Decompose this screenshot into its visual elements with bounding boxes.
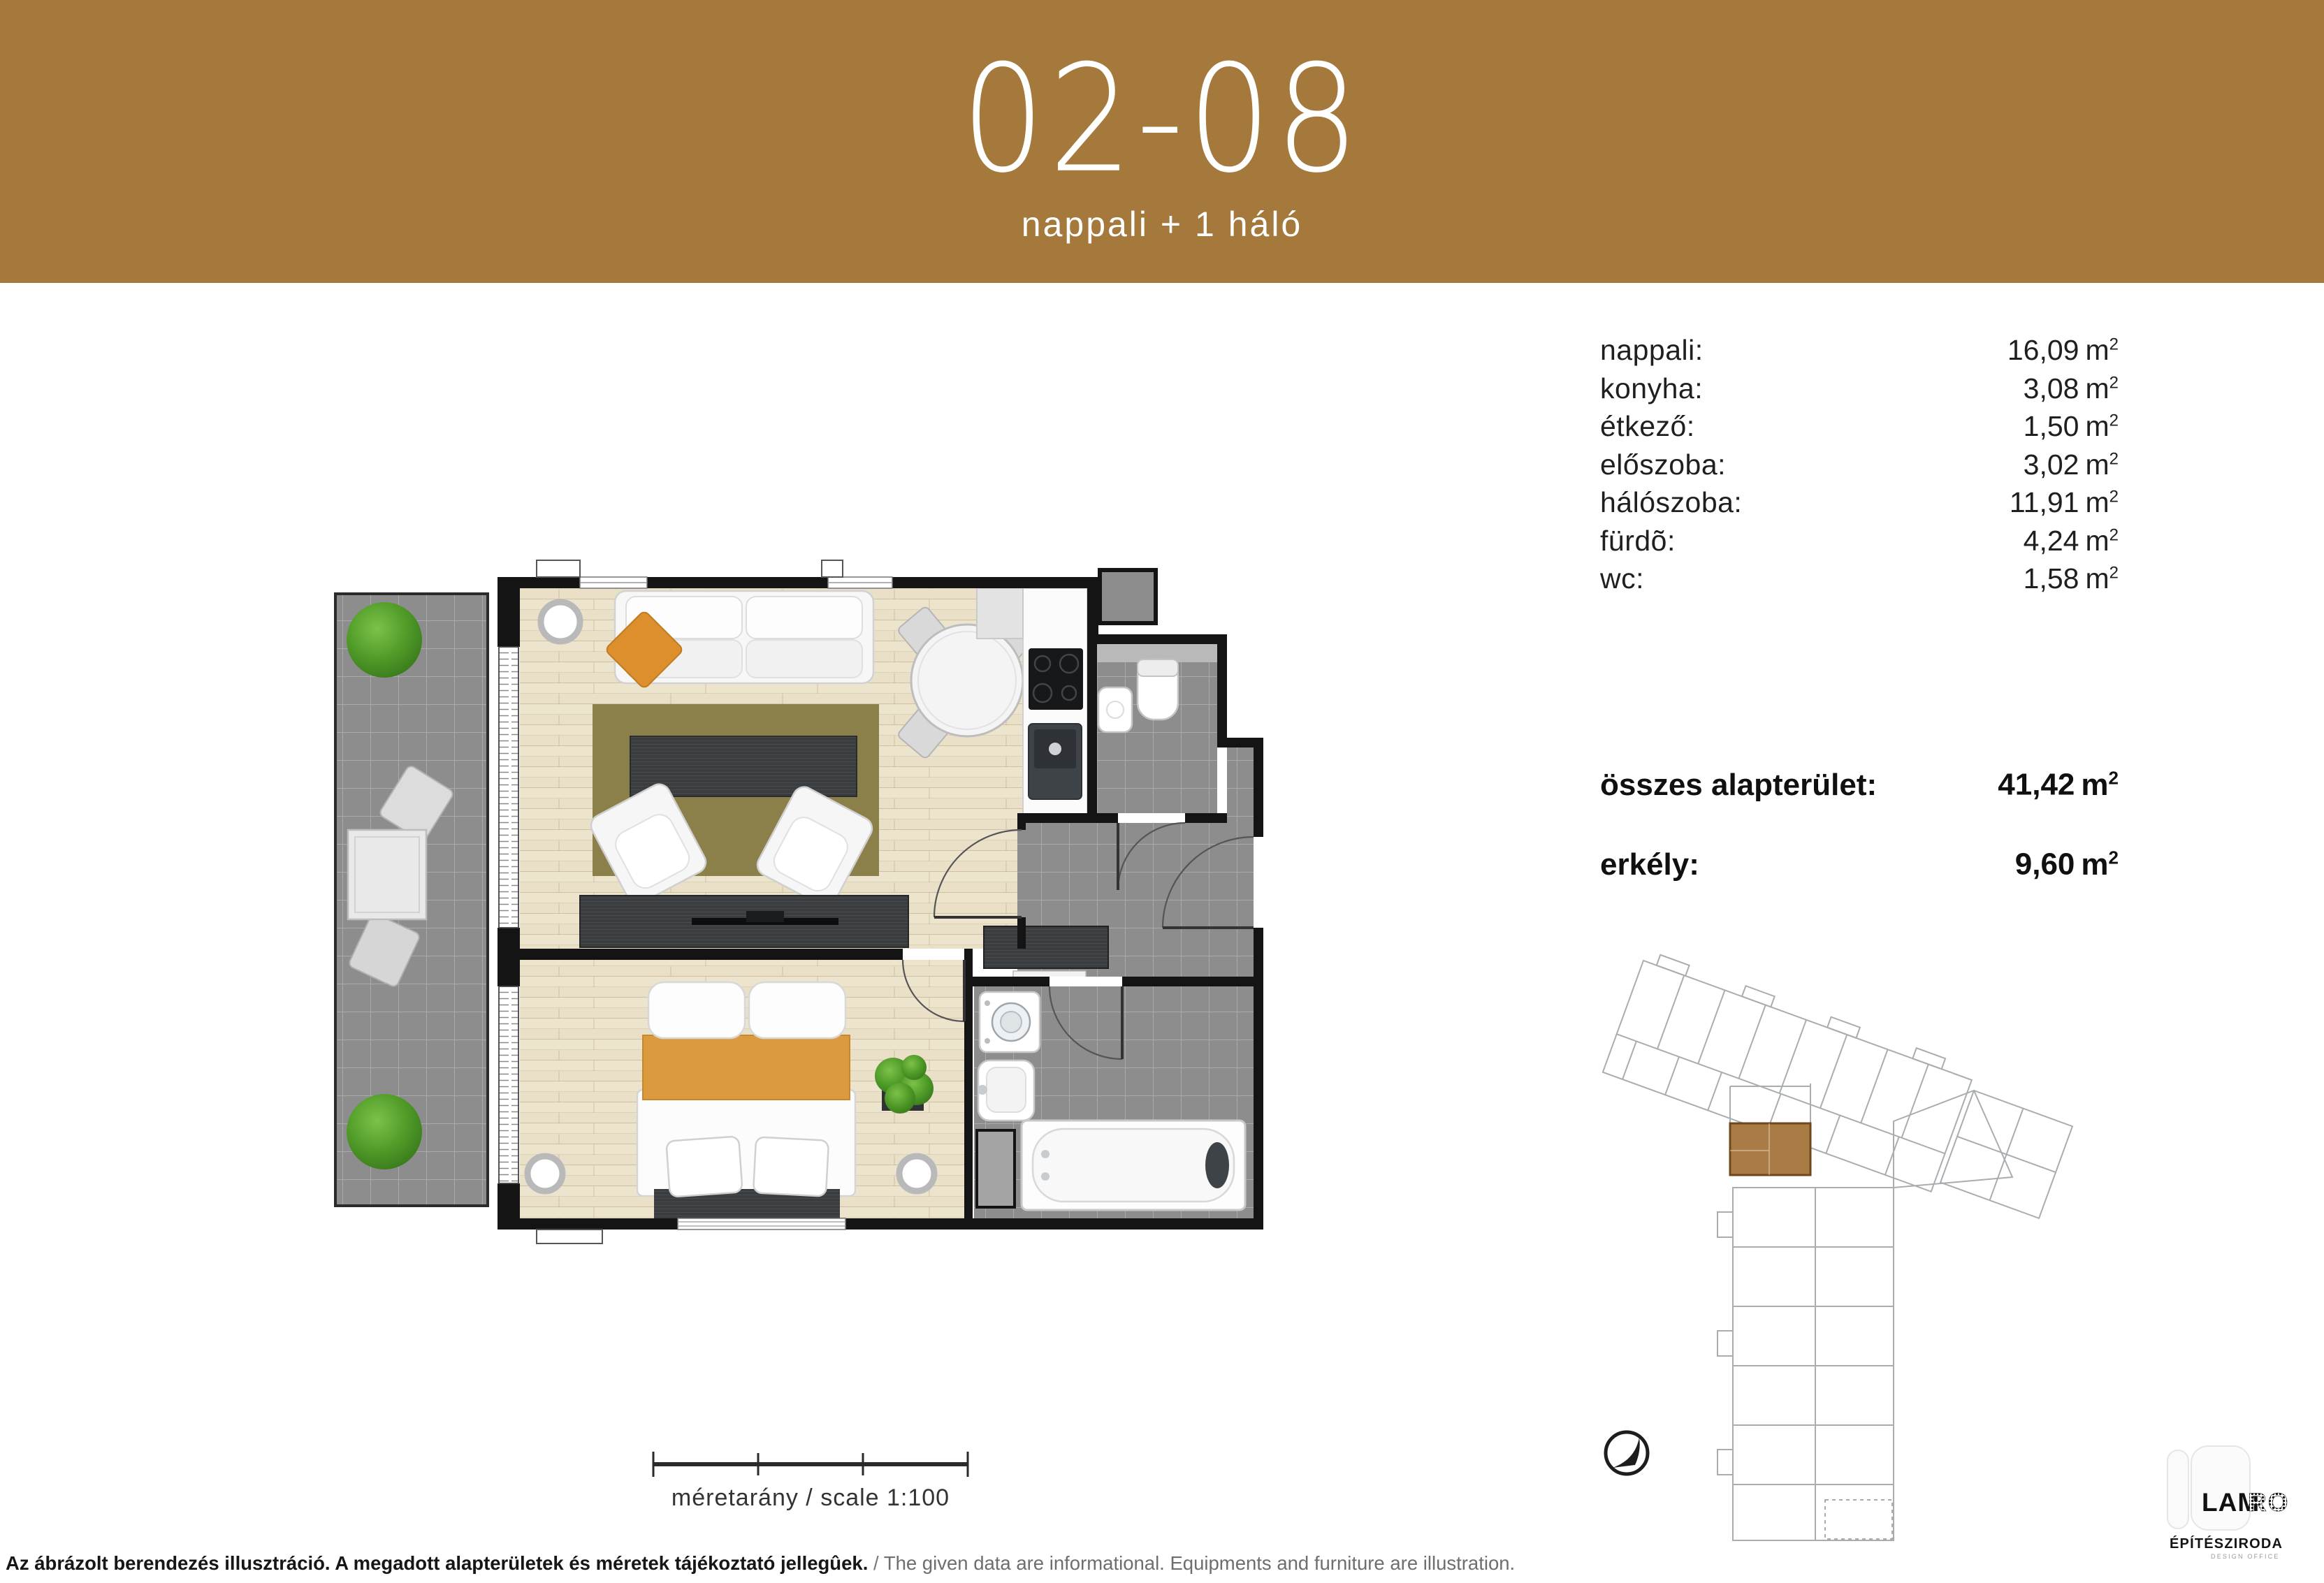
logo-text-dotted: RO: [2248, 1488, 2290, 1517]
bedside-lamp: [528, 1156, 562, 1191]
table-row: fürdõ: 4,24m2: [1600, 525, 2119, 563]
unit-subtitle: nappali + 1 háló: [0, 204, 2324, 245]
logo-line2: ÉPÍTÉSZIRODA: [2170, 1535, 2283, 1552]
room-label: nappali:: [1600, 334, 1704, 367]
cooktop: [1029, 648, 1083, 710]
wardrobe: [984, 926, 1108, 968]
footer-disclaimer: Az ábrázolt berendezés illusztráció. A m…: [6, 1552, 1515, 1575]
tv-sideboard: [580, 896, 908, 947]
room-label: wc:: [1600, 562, 1644, 595]
table-row: étkező: 1,50m2: [1600, 410, 2119, 448]
table-row: nappali: 16,09m2: [1600, 334, 2119, 372]
hall-shelf: [1013, 971, 1086, 977]
floor-plan-illustration: [314, 537, 1272, 1280]
total-area-label: összes alapterület:: [1600, 768, 1877, 803]
wc-sink: [1098, 687, 1132, 732]
bush-plant: [347, 1094, 422, 1169]
scale-bar: méretarány / scale 1:100: [650, 1447, 971, 1512]
disclaimer-en: The given data are informational. Equipm…: [884, 1552, 1515, 1574]
room-area-value: 1,50m2: [2024, 410, 2119, 443]
table-row: wc: 1,58m2: [1600, 562, 2119, 601]
balcony-area-label: erkély:: [1600, 847, 1699, 882]
header-banner: 02-08 nappali + 1 háló: [0, 0, 2324, 283]
floor-lamp: [541, 602, 580, 641]
table-row: hálószoba: 11,91m2: [1600, 486, 2119, 525]
balcony-area-value: 9,60m2: [2015, 847, 2119, 882]
room-area-value: 3,02m2: [2024, 448, 2119, 481]
shaft-box: [1100, 570, 1156, 623]
total-area-row: összes alapterület: 41,42m2: [1600, 767, 2119, 803]
room-area-table: nappali: 16,09m2 konyha: 3,08m2 étkező: …: [1600, 334, 2119, 601]
brochure-page: 02-08 nappali + 1 háló nappali: 16,09m2 …: [0, 0, 2324, 1583]
building-outline: [1603, 950, 2072, 1540]
room-area-value: 3,08m2: [2024, 372, 2119, 405]
kitchen-sink: [1029, 724, 1082, 799]
highlighted-unit: [1730, 1123, 1810, 1175]
washing-machine: [980, 992, 1040, 1052]
page-title: 02-08: [70, 0, 2254, 194]
bathroom-sink: [978, 1060, 1034, 1121]
room-area-value: 1,58m2: [2024, 562, 2119, 595]
logo-line3: DESIGN OFFICE: [2211, 1553, 2280, 1560]
bush-plant: [347, 602, 422, 678]
disclaimer-hu: Az ábrázolt berendezés illusztráció. A m…: [6, 1552, 868, 1574]
bathroom-niche: [977, 1130, 1015, 1207]
room-label: konyha:: [1600, 372, 1703, 405]
table-row: konyha: 3,08m2: [1600, 372, 2119, 411]
bathtub: [1022, 1121, 1245, 1210]
room-area-value: 4,24m2: [2024, 525, 2119, 557]
scale-bar-graphic: [650, 1447, 971, 1480]
disclaimer-separator: /: [868, 1552, 883, 1574]
room-label: hálószoba:: [1600, 486, 1742, 519]
balcony-area-row: erkély: 9,60m2: [1600, 847, 2119, 882]
room-label: étkező:: [1600, 410, 1695, 443]
scale-label: méretarány / scale 1:100: [650, 1484, 971, 1512]
window-band: [499, 647, 518, 1183]
north-arrow-icon: [1606, 1432, 1648, 1474]
room-area-value: 11,91m2: [2010, 486, 2119, 519]
room-label: fürdõ:: [1600, 525, 1676, 557]
room-area-value: 16,09m2: [2007, 334, 2119, 367]
toilet: [1138, 659, 1178, 720]
table-row: előszoba: 3,02m2: [1600, 448, 2119, 487]
total-area-value: 41,42m2: [1998, 767, 2119, 803]
company-logo: LAM RO ÉPÍTÉSZIRODA DESIGN OFFICE: [2163, 1443, 2324, 1576]
fridge: [977, 588, 1023, 639]
site-plan: [1593, 947, 2096, 1554]
bedside-lamp: [899, 1156, 934, 1191]
room-label: előszoba:: [1600, 448, 1726, 481]
